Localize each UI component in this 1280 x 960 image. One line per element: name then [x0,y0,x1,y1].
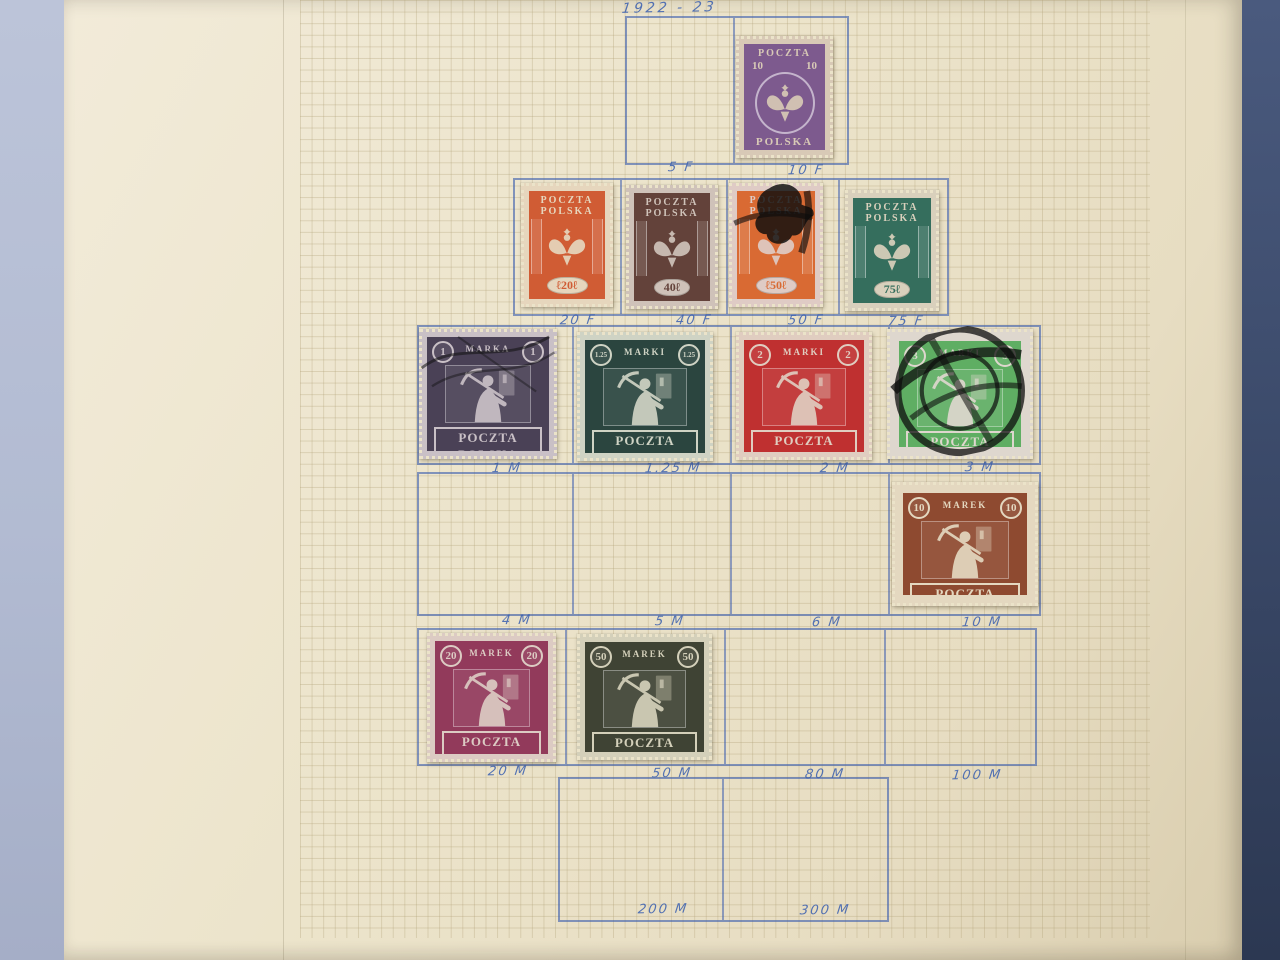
stamp-top-text: POCZTA POLSKA [737,191,815,217]
stamp-design: 20 MAREK 20 POCZTA POLSKA [435,641,548,754]
denomination-word: MAREK [622,649,667,659]
stamp-design: POCZTA 10 10 POLSKA [744,44,825,150]
photo-stamp-album-page: 1922 - 23 5 F 10 F [0,0,1280,960]
stamp-top-text: POCZTA POLSKA [634,193,710,219]
stamp-line2: POLSKA [853,213,931,224]
stamp-vignette [603,368,687,426]
torch-column-left [855,226,866,278]
stamp-top-band: 1.25 MARKI 1.25 [585,340,705,366]
stamp-vignette [603,670,686,728]
stamp-vignette [917,369,1003,427]
stamp-value-left: 2 [749,344,771,366]
stamp-value-left: 1 [432,341,454,363]
miner-icon [459,670,525,726]
stamp-line2: POLSKA [634,208,710,219]
stamp-value-right: 10 [1000,497,1022,519]
stamp-value-left: 3 [904,345,926,367]
stamp-vignette [529,217,605,276]
stamp-value-tablet: ℓ20ℓ [547,277,588,294]
miner-icon [771,369,837,425]
miner-icon [927,370,993,426]
torch-column-right [697,221,708,276]
stamp-design: POCZTA POLSKA ℓ20ℓ [529,191,605,299]
stamp-value-tablet: 40ℓ [654,279,691,296]
stamp-10f: POCZTA 10 10 POLSKA [736,36,833,158]
stamp-20m: 20 MAREK 20 POCZTA POLSKA [427,633,556,762]
stamp-design: 10 MAREK 10 POCZTA POLSKA [903,493,1027,595]
stamp-vignette [737,217,815,276]
stamp-line1: POCZTA [737,195,815,206]
stamp-design: 1.25 MARKI 1.25 POCZTA POLSKA [585,340,705,453]
stamp-value-left: 10 [908,497,930,519]
torch-column-left [739,219,750,274]
stamp-value-right: 2 [837,344,859,366]
stamp-1-25m: 1.25 MARKI 1.25 POCZTA POLSKA [577,332,713,461]
stamp-bottom-text: POCZTA POLSKA [751,430,857,452]
stamp-3m: 3 MARKI 3 POCZTA POLSKA [887,329,1033,459]
stamp-value-right: 1 [522,341,544,363]
stamp-vignette [744,72,825,134]
stamp-bottom-text: POCZTA POLSKA [592,732,697,752]
stamp-value-right: 20 [521,645,543,667]
stamp-bottom-text: POCZTA POLSKA [434,427,542,451]
miner-icon [612,671,678,727]
stamp-50f: POCZTA POLSKA ℓ50ℓ [729,183,823,307]
stamp-top-band: 2 MARKI 2 [744,340,864,366]
stamp-1m: 1 MARKA 1 POCZTA POLSKA [419,329,557,459]
stamp-bottom-text: POCZTA POLSKA [442,731,541,754]
denomination-word: MAREK [469,648,514,658]
stamp-corner-values: 10 10 [744,59,825,72]
stamp-vignette [921,521,1009,579]
torch-column-left [636,221,647,276]
stamp-line1: POCZTA [853,202,931,213]
stamp-value-left: 50 [590,646,612,668]
stamp-top-band: 10 MAREK 10 [903,493,1027,519]
stamp-value-left: 20 [440,645,462,667]
torch-column-left [531,219,542,274]
stamp-design: POCZTA POLSKA 75ℓ [853,198,931,303]
stamp-vignette [445,365,531,423]
stamp-value-right: 50 [677,646,699,668]
torch-column-right [802,219,813,274]
torch-column-right [918,226,929,278]
stamp-design: POCZTA POLSKA ℓ50ℓ [737,191,815,299]
stamp-top-band: 1 MARKA 1 [427,337,549,363]
eagle-icon [869,230,915,274]
miner-icon [612,369,678,425]
stamp-20f: POCZTA POLSKA ℓ20ℓ [521,183,613,307]
stamp-design: 2 MARKI 2 POCZTA POLSKA [744,340,864,452]
denomination-word: MAREK [943,500,988,510]
stamp-vignette [634,219,710,278]
eagle-icon [544,225,590,269]
stamp-top-band: 20 MAREK 20 [435,641,548,667]
stamp-top-band: 50 MAREK 50 [585,642,704,668]
stamp-10m: 10 MAREK 10 POCZTA POLSKA [892,482,1038,606]
stamp-value-left: 10 [752,60,763,72]
stamp-value-tablet: 75ℓ [874,281,911,298]
stamp-vignette [762,368,846,426]
stamp-top-text: POCZTA [744,44,825,59]
ornate-oval [755,72,815,134]
stamp-2m: 2 MARKI 2 POCZTA POLSKA [736,332,872,460]
stamp-top-band: 3 MARKI 3 [899,341,1021,367]
miner-icon [455,366,521,422]
torch-column-right [592,219,603,274]
stamp-value-right: 1.25 [678,344,700,366]
stamp-bottom-text: POLSKA [744,134,825,150]
stamp-top-text: POCZTA POLSKA [529,191,605,217]
stamp-design: 50 MAREK 50 POCZTA POLSKA [585,642,704,752]
stamp-vignette [853,224,931,280]
stamp-value-tablet: ℓ50ℓ [756,277,797,294]
stamp-bottom-text: POCZTA POLSKA [906,431,1014,447]
stamp-design: 3 MARKI 3 POCZTA POLSKA [899,341,1021,447]
stamp-design: POCZTA POLSKA 40ℓ [634,193,710,301]
stamp-line1: POCZTA [634,197,710,208]
denomination-word: MARKA [466,344,511,354]
denomination-word: MARKI [783,347,825,357]
stamp-value-right: 10 [806,60,817,72]
stamp-design: 1 MARKA 1 POCZTA POLSKA [427,337,549,451]
stamp-top-text: POCZTA POLSKA [853,198,931,224]
stamp-value-left: 1.25 [590,344,612,366]
stamp-50m: 50 MAREK 50 POCZTA POLSKA [577,634,712,760]
stamp-line2: POLSKA [737,206,815,217]
stamp-vignette [453,669,530,727]
denomination-word: MARKI [939,348,981,358]
eagle-icon [649,227,695,271]
stamp-line1: POCZTA [529,195,605,206]
miner-icon [932,522,998,578]
stamp-line2: POLSKA [529,206,605,217]
stamp-value-right: 3 [994,345,1016,367]
eagle-icon [762,81,808,125]
eagle-icon [753,225,799,269]
denomination-word: MARKI [624,347,666,357]
stamp-75f: POCZTA POLSKA 75ℓ [845,190,939,311]
stamp-bottom-text: POCZTA POLSKA [910,583,1020,595]
stamps-layer: POCZTA 10 10 POLSKA POCZTA POLSKA [0,0,1280,960]
stamp-bottom-text: POCZTA POLSKA [592,430,698,453]
stamp-40f: POCZTA POLSKA 40ℓ [626,185,718,309]
